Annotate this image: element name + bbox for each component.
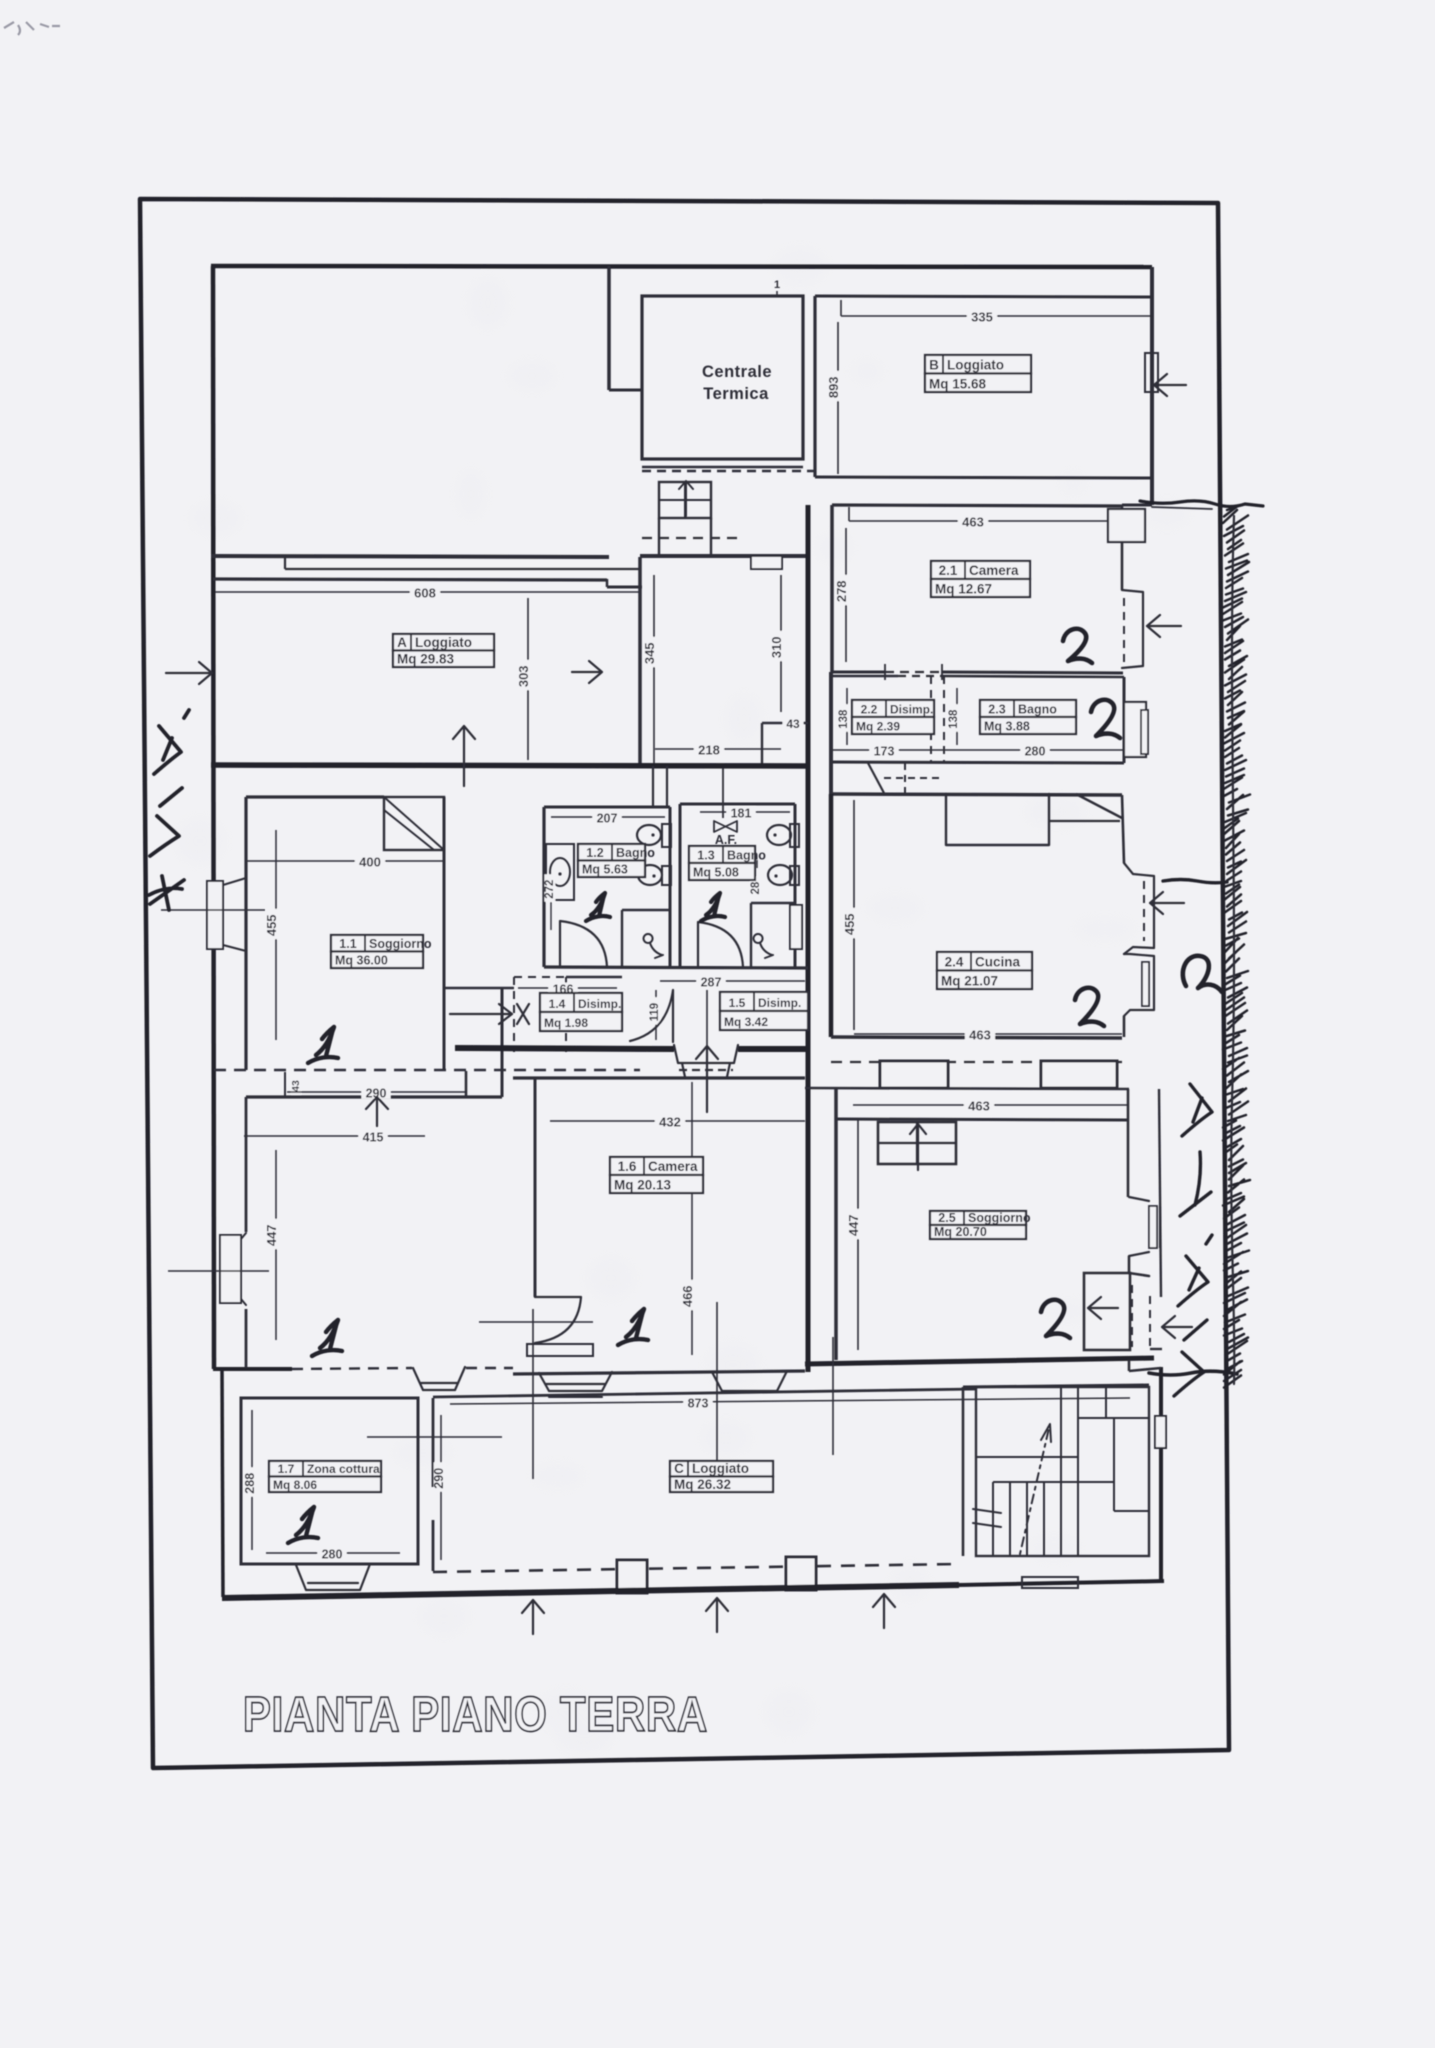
svg-text:1.3: 1.3 [697,848,714,862]
svg-text:B: B [929,357,939,372]
svg-text:138: 138 [838,709,850,729]
svg-text:Zona cottura: Zona cottura [307,1462,380,1476]
svg-text:432: 432 [659,1114,681,1129]
svg-text:2.4: 2.4 [945,954,964,969]
svg-text:466: 466 [680,1285,695,1307]
svg-text:207: 207 [597,811,618,825]
svg-text:310: 310 [769,636,784,658]
svg-text:1.4: 1.4 [549,997,566,1011]
svg-text:Bagno: Bagno [616,846,655,860]
svg-text:1: 1 [774,279,780,291]
svg-text:Mq 8.06: Mq 8.06 [273,1478,317,1492]
svg-text:463: 463 [969,1027,991,1042]
svg-text:345: 345 [642,642,657,664]
svg-text:A: A [397,635,407,650]
svg-text:Centrale: Centrale [702,363,772,381]
svg-text:455: 455 [842,913,857,935]
svg-text:280: 280 [1025,744,1046,758]
svg-text:Loggiato: Loggiato [415,635,472,650]
svg-text:400: 400 [359,854,381,869]
svg-text:608: 608 [414,585,436,600]
svg-text:1.6: 1.6 [618,1159,637,1174]
svg-text:Mq 5.08: Mq 5.08 [693,866,739,880]
svg-text:Camera: Camera [969,563,1019,578]
svg-text:Mq 29.83: Mq 29.83 [397,652,455,667]
svg-text:873: 873 [688,1396,709,1410]
svg-text:463: 463 [962,514,984,529]
svg-text:Termica: Termica [703,385,769,403]
svg-text:Camera: Camera [648,1159,698,1174]
svg-text:290: 290 [432,1468,446,1489]
svg-text:Bagno: Bagno [727,848,766,862]
svg-text:455: 455 [264,914,279,936]
svg-text:Mq 3.88: Mq 3.88 [984,720,1030,734]
svg-text:Mq 3.42: Mq 3.42 [724,1015,768,1029]
svg-text:173: 173 [874,744,895,758]
svg-text:447: 447 [264,1224,279,1246]
svg-text:Disimp.: Disimp. [578,997,621,1011]
svg-text:Cucina: Cucina [975,954,1021,969]
svg-text:Mq 26.32: Mq 26.32 [674,1477,731,1492]
svg-text:Mq 20.13: Mq 20.13 [614,1177,672,1192]
svg-text:43: 43 [786,717,800,731]
svg-text:278: 278 [834,580,849,602]
svg-text:43: 43 [290,1080,302,1092]
svg-text:119: 119 [649,1003,661,1022]
svg-text:181: 181 [731,806,752,820]
svg-text:335: 335 [971,309,993,324]
svg-text:2.3: 2.3 [988,702,1005,716]
svg-text:138: 138 [948,709,960,729]
svg-text:Mq 1.98: Mq 1.98 [544,1016,588,1030]
svg-text:28: 28 [750,881,762,894]
svg-text:Mq 2.39: Mq 2.39 [856,720,900,734]
svg-text:Loggiato: Loggiato [692,1461,749,1476]
svg-text:218: 218 [698,742,720,757]
svg-text:1.1: 1.1 [339,937,356,951]
svg-text:Mq 15.68: Mq 15.68 [929,376,987,391]
svg-text:Soggiorno: Soggiorno [369,937,432,951]
svg-text:463: 463 [968,1098,990,1113]
svg-text:Mq 5.63: Mq 5.63 [582,863,628,877]
svg-text:303: 303 [516,665,531,687]
svg-text:2.5: 2.5 [938,1211,955,1225]
svg-text:Mq 20.70: Mq 20.70 [934,1225,987,1239]
svg-text:2.1: 2.1 [939,563,958,578]
svg-text:Disimp.: Disimp. [758,996,801,1010]
svg-text:1.2: 1.2 [586,846,603,860]
svg-text:1.5: 1.5 [729,996,746,1010]
svg-text:Mq 21.07: Mq 21.07 [941,973,998,988]
svg-text:447: 447 [846,1214,861,1236]
svg-text:Mq 36.00: Mq 36.00 [335,954,388,968]
svg-text:415: 415 [363,1130,384,1144]
svg-text:1.7: 1.7 [278,1462,295,1476]
svg-text:893: 893 [826,376,841,398]
svg-text:PIANTA PIANO TERRA: PIANTA PIANO TERRA [243,1688,708,1742]
svg-text:Soggiorno: Soggiorno [968,1211,1031,1225]
svg-text:272: 272 [544,880,556,899]
svg-text:Bagno: Bagno [1018,702,1057,716]
svg-text:C: C [674,1461,684,1476]
svg-text:2.2: 2.2 [861,702,878,716]
svg-text:Loggiato: Loggiato [947,357,1004,372]
svg-text:280: 280 [322,1547,343,1561]
svg-text:Disimp.: Disimp. [890,702,933,716]
svg-text:288: 288 [243,1473,257,1494]
svg-text:287: 287 [701,975,722,989]
svg-text:Mq 12.67: Mq 12.67 [935,581,992,596]
